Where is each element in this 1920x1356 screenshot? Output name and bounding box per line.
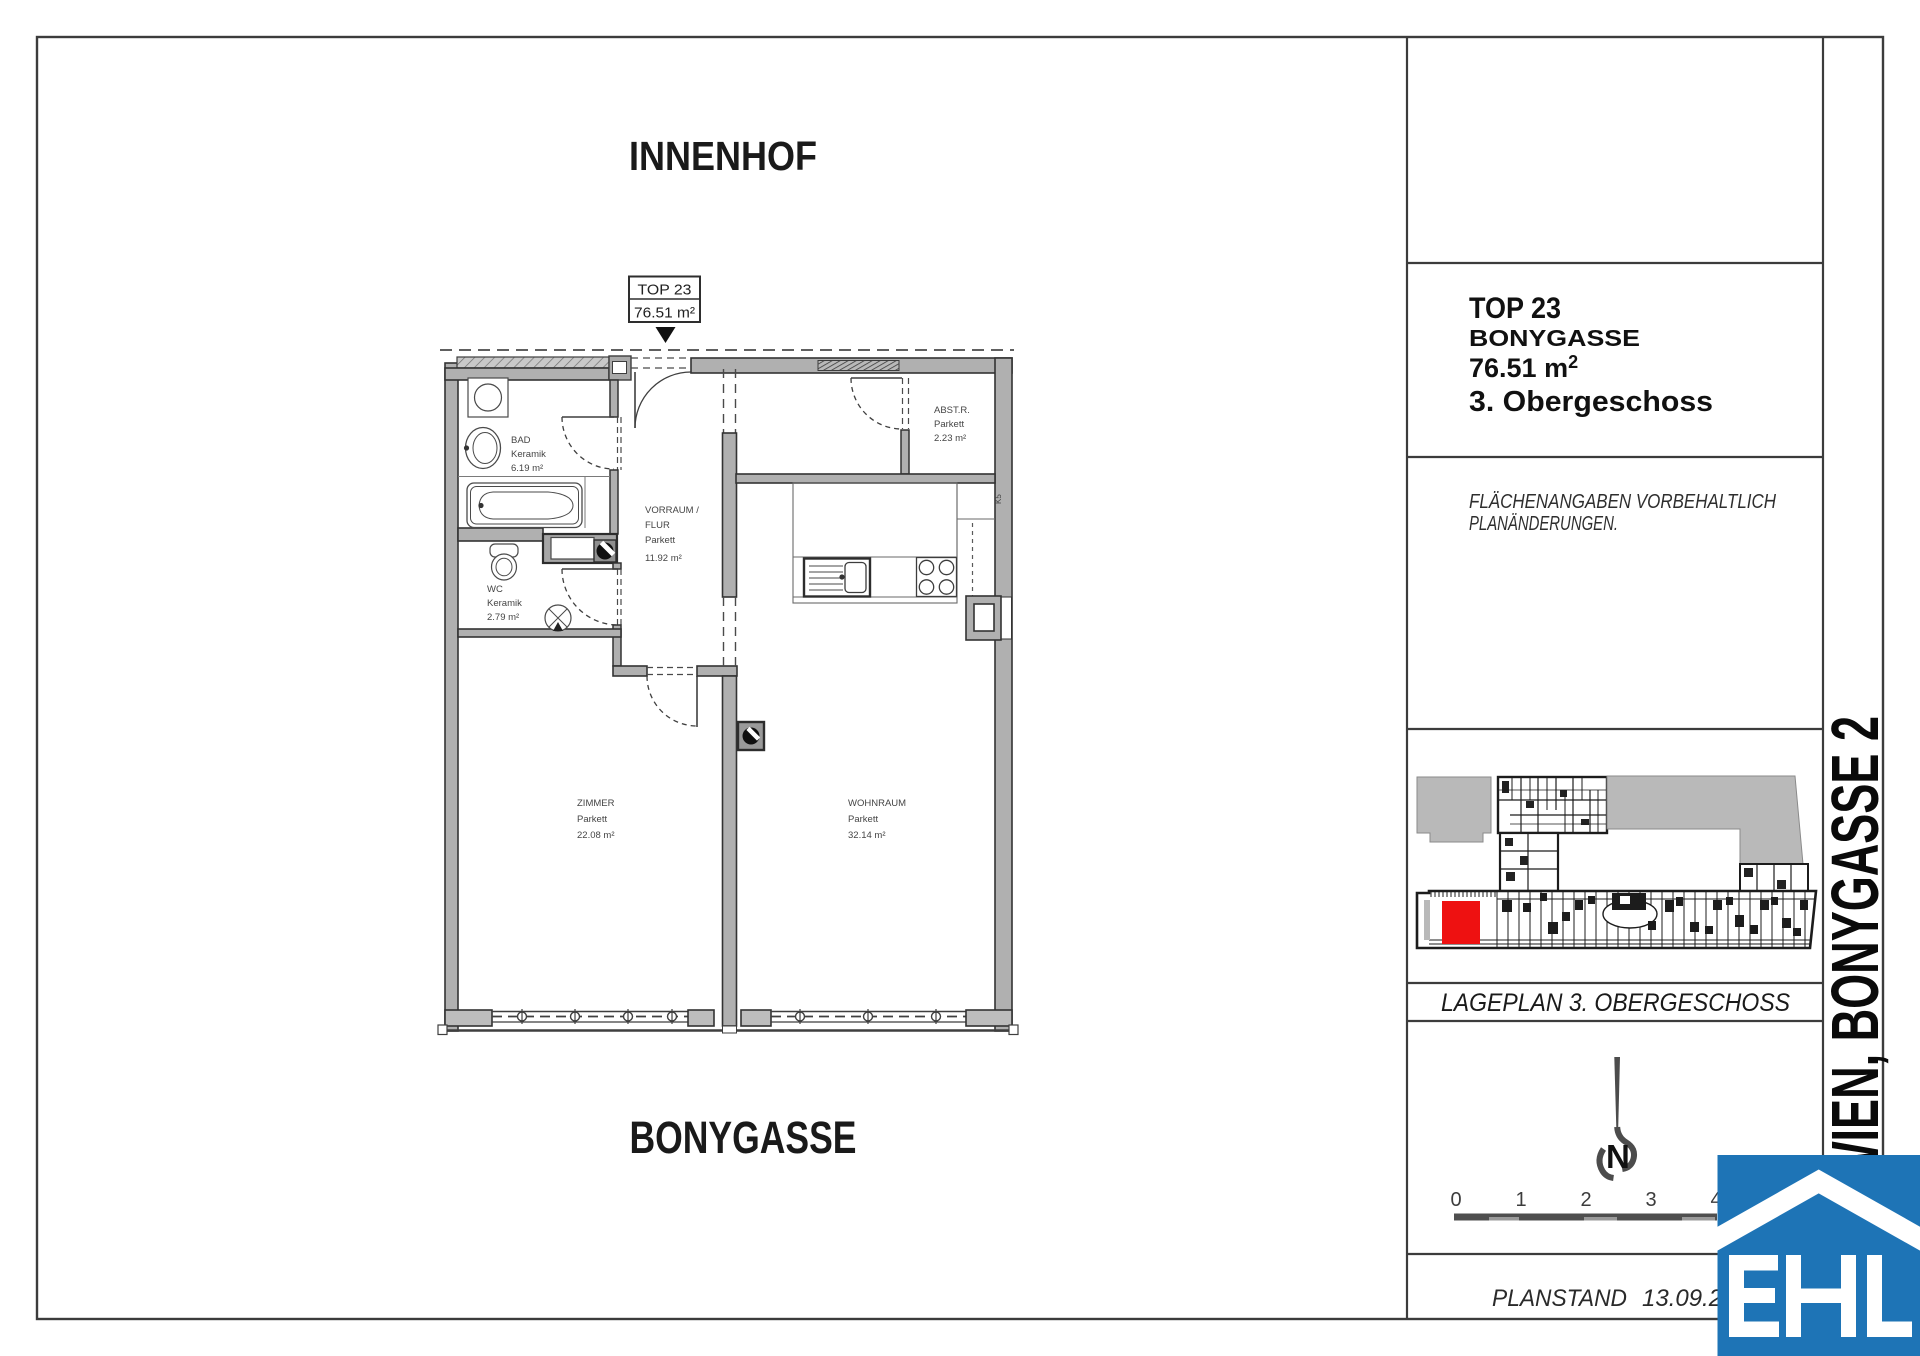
svg-text:WOHNRAUM: WOHNRAUM — [848, 798, 906, 809]
svg-text:VORRAUM /: VORRAUM / — [645, 505, 699, 516]
svg-text:2.23 m²: 2.23 m² — [934, 433, 966, 444]
svg-text:76.51 m²: 76.51 m² — [634, 305, 695, 322]
svg-text:WC: WC — [487, 584, 503, 595]
svg-text:Parkett: Parkett — [577, 814, 607, 825]
svg-text:Parkett: Parkett — [645, 535, 675, 546]
svg-text:PLANÄNDERUNGEN.: PLANÄNDERUNGEN. — [1469, 512, 1618, 535]
svg-text:ABST.R.: ABST.R. — [934, 405, 970, 416]
svg-text:6.19 m²: 6.19 m² — [511, 463, 543, 474]
svg-text:Parkett: Parkett — [934, 419, 964, 430]
svg-text:K5: K5 — [994, 494, 1003, 504]
svg-text:3: 3 — [1645, 1189, 1656, 1211]
svg-text:INNENHOF: INNENHOF — [629, 133, 817, 179]
svg-text:11.92 m²: 11.92 m² — [645, 553, 682, 564]
svg-text:76.51 m2: 76.51 m2 — [1469, 352, 1578, 383]
svg-text:FLUR: FLUR — [645, 520, 670, 531]
svg-text:3. Obergeschoss: 3. Obergeschoss — [1469, 386, 1713, 418]
svg-text:TOP 23: TOP 23 — [638, 282, 692, 299]
svg-text:32.14 m²: 32.14 m² — [848, 830, 886, 841]
svg-text:BONYGASSE: BONYGASSE — [1469, 325, 1640, 351]
svg-text:BONYGASSE: BONYGASSE — [630, 1112, 857, 1163]
svg-text:22.08 m²: 22.08 m² — [577, 830, 615, 841]
svg-text:TOP 23: TOP 23 — [1469, 292, 1561, 325]
svg-text:FLÄCHENANGABEN VORBEHALTLICH: FLÄCHENANGABEN VORBEHALTLICH — [1469, 490, 1776, 513]
svg-text:BAD: BAD — [511, 435, 531, 446]
svg-text:2: 2 — [1580, 1189, 1591, 1211]
svg-text:Keramik: Keramik — [511, 449, 546, 460]
svg-text:ZIMMER: ZIMMER — [577, 798, 615, 809]
svg-text:1: 1 — [1515, 1189, 1526, 1211]
svg-text:N: N — [1606, 1138, 1630, 1175]
svg-text:PLANSTAND: PLANSTAND — [1492, 1285, 1627, 1312]
svg-text:WIEN, BONYGASSE 2: WIEN, BONYGASSE 2 — [1818, 716, 1893, 1184]
svg-text:Keramik: Keramik — [487, 598, 522, 609]
svg-text:Parkett: Parkett — [848, 814, 878, 825]
svg-text:0: 0 — [1450, 1189, 1461, 1211]
svg-text:LAGEPLAN 3. OBERGESCHOSS: LAGEPLAN 3. OBERGESCHOSS — [1441, 989, 1790, 1017]
svg-text:2.79 m²: 2.79 m² — [487, 612, 519, 623]
